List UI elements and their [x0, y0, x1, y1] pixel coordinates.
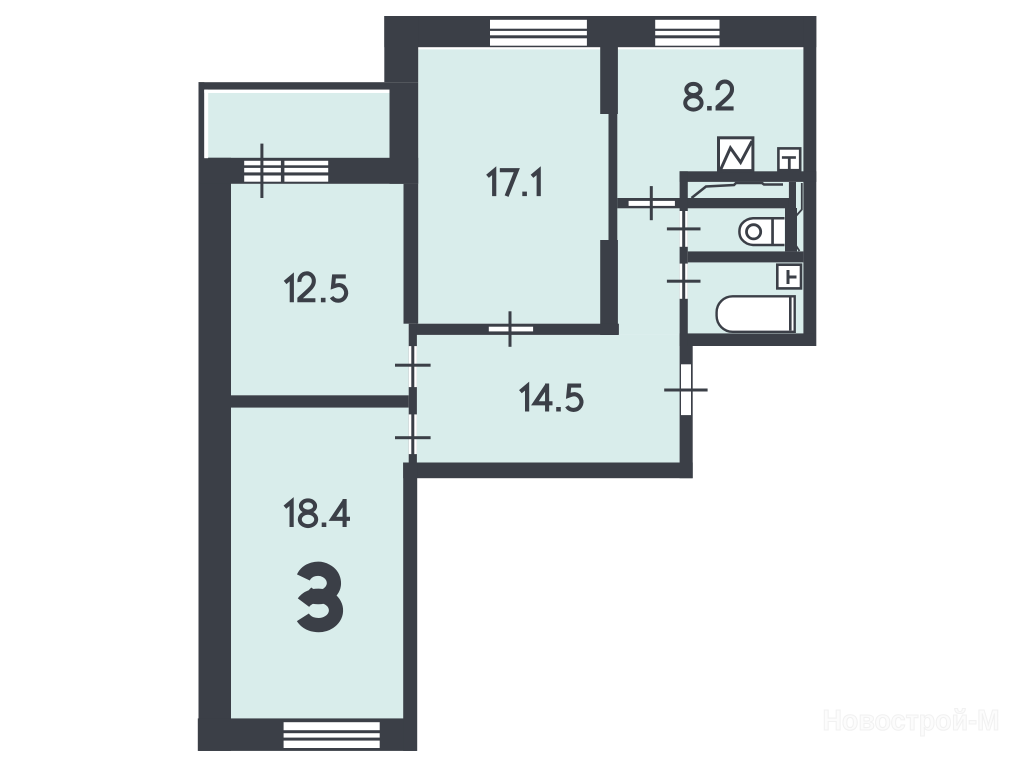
- svg-text:Новострой-М: Новострой-М: [823, 705, 1000, 737]
